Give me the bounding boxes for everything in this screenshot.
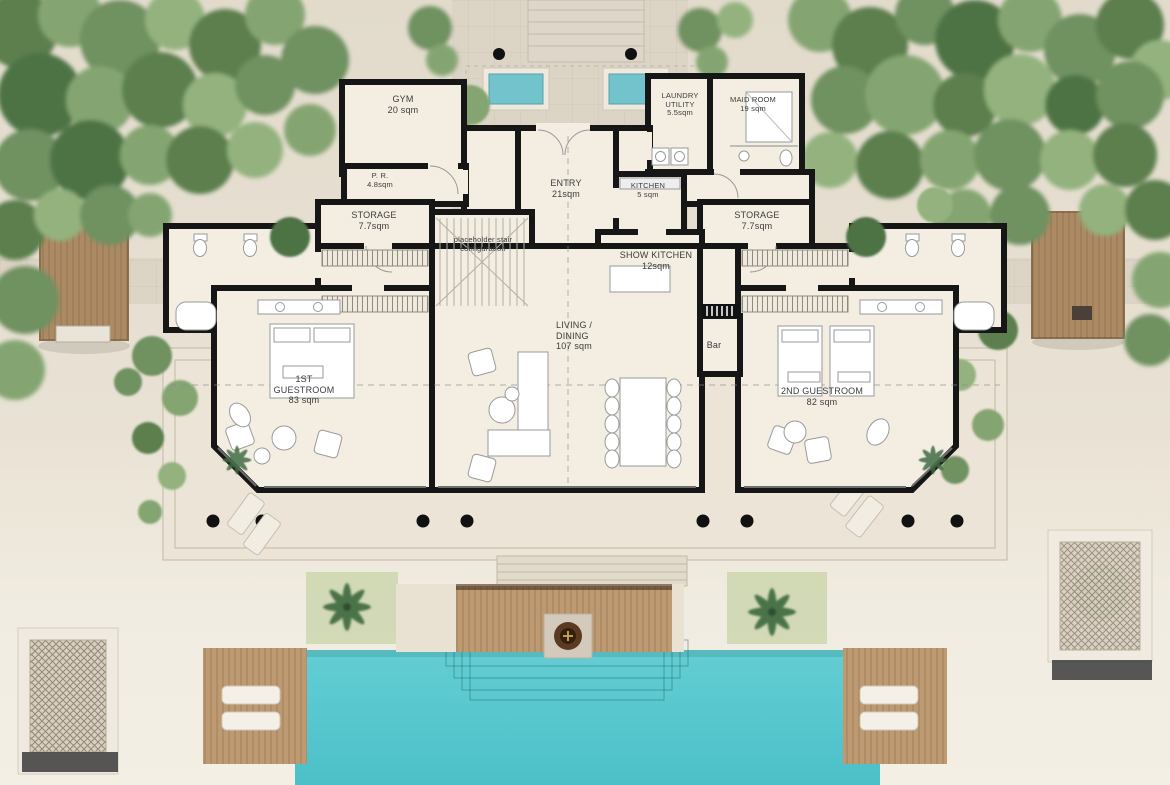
room-label-show-kitchen: SHOW KITCHEN12sqm bbox=[620, 250, 692, 271]
palm-tree-right bbox=[748, 588, 796, 636]
dining-table bbox=[620, 378, 666, 466]
main-pool-deck bbox=[396, 584, 684, 658]
room-label-powder-room: P. R.4.8sqm bbox=[367, 172, 393, 189]
site-plan: GYM20 sqm P. R.4.8sqm STORAGE7.7sqm ENTR… bbox=[0, 0, 1170, 785]
room-label-guest2: 2ND GUESTROOM82 sqm bbox=[781, 386, 863, 407]
pool-deck-right bbox=[843, 648, 947, 764]
vanity bbox=[258, 300, 340, 314]
fire-pit bbox=[544, 614, 592, 658]
bathtub bbox=[954, 302, 994, 330]
palm-small-right bbox=[919, 446, 948, 475]
palm-small-left bbox=[223, 446, 252, 475]
room-label-guest1: 1STGUESTROOM83 sqm bbox=[274, 374, 335, 406]
room-label-entry: ENTRY21sqm bbox=[550, 178, 581, 199]
vanity bbox=[860, 300, 942, 314]
room-label-kitchen: KITCHEN5 sqm bbox=[631, 182, 665, 199]
room-label-laundry: LAUNDRYUTILITY5.5sqm bbox=[661, 92, 698, 118]
room-label-gym: GYM20 sqm bbox=[388, 94, 419, 115]
room-label-storage-left: STORAGE7.7sqm bbox=[351, 210, 396, 231]
room-label-bar: Bar bbox=[707, 340, 722, 351]
palm-tree-left bbox=[323, 583, 371, 631]
room-label-living-dining: LIVING /DINING107 sqm bbox=[556, 320, 592, 352]
swimming-pool bbox=[295, 640, 880, 785]
room-label-storage-right: STORAGE7.7sqm bbox=[734, 210, 779, 231]
pool-deck-left bbox=[203, 648, 307, 764]
floor-plan-drawing bbox=[0, 0, 1170, 785]
room-label-maid: MAID ROOM19 sqm bbox=[730, 96, 776, 113]
pavilion-bottom-right bbox=[1048, 530, 1152, 680]
bar-counter bbox=[702, 304, 740, 318]
stair-note: placeholder stairconfiguration bbox=[454, 236, 512, 253]
pavilion-bottom-left bbox=[18, 628, 118, 774]
bathtub bbox=[176, 302, 216, 330]
